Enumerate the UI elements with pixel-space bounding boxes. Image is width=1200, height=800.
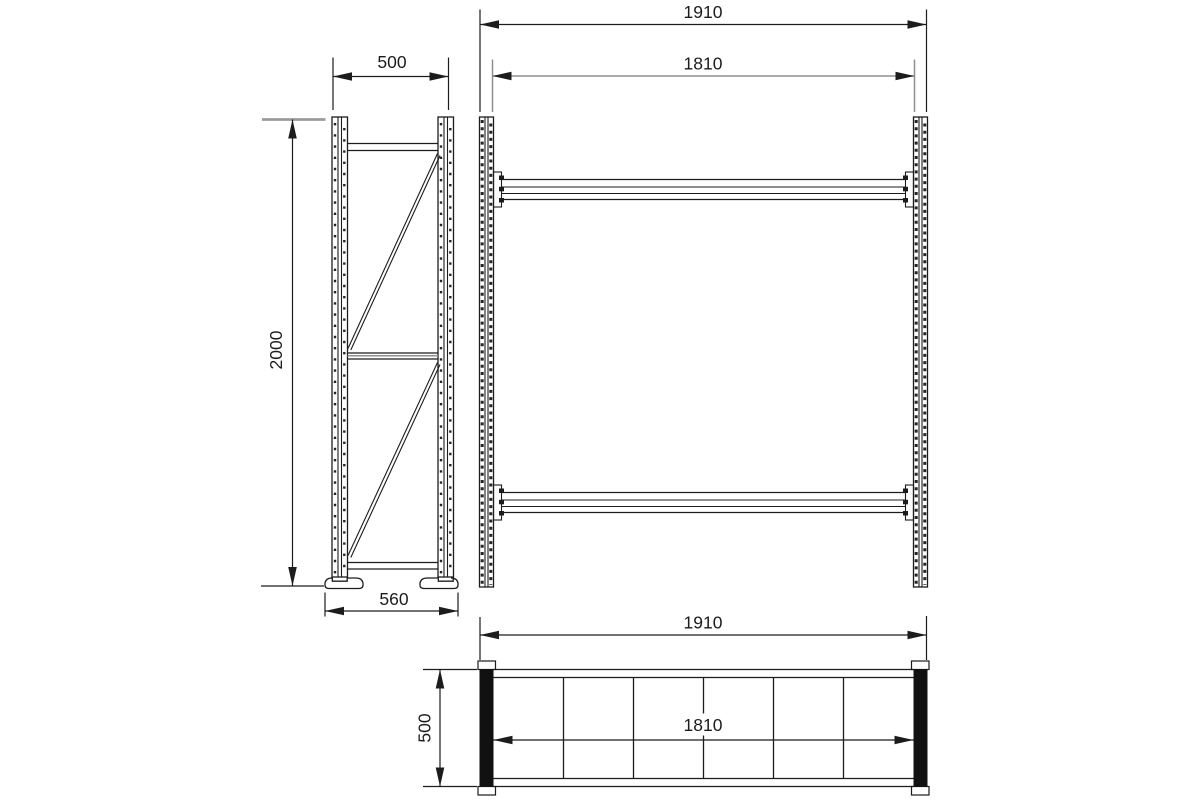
arrowhead <box>493 72 512 81</box>
arrowhead <box>436 670 445 689</box>
arrowhead <box>480 631 499 640</box>
connector-hook <box>499 198 504 203</box>
dimension-label: 1910 <box>684 613 723 633</box>
dim-side-frame-width: 500 <box>333 52 449 110</box>
plan-post-right <box>914 669 928 787</box>
arrowhead <box>494 736 513 745</box>
dimension-label: 560 <box>379 589 408 609</box>
arrowhead <box>439 607 458 616</box>
dimension-label: 2000 <box>266 330 286 369</box>
diagonal-brace-upper <box>351 156 440 351</box>
dim-side-base-width: 560 <box>325 589 458 617</box>
foot-pad <box>478 787 496 796</box>
diagonal-brace-lower <box>348 363 438 556</box>
foot-plate-right <box>420 578 458 589</box>
front-right-post <box>914 117 928 587</box>
dim-side-height: 2000 <box>261 120 326 587</box>
foot-pad <box>478 661 496 670</box>
plan-post-left <box>480 669 494 787</box>
arrowhead <box>895 736 914 745</box>
upper-beam <box>494 172 914 207</box>
dim-plan-depth: 500 <box>415 670 478 787</box>
arrowhead <box>325 607 344 616</box>
arrowhead <box>480 20 499 29</box>
foot-pad <box>912 787 930 796</box>
diagonal-brace-upper <box>348 154 438 349</box>
dimension-label: 500 <box>415 713 435 742</box>
arrowhead <box>896 72 915 81</box>
dim-front-beam-width: 1810 <box>493 54 915 113</box>
foot-plate-left <box>325 578 363 589</box>
diagonal-brace-lower <box>351 365 440 558</box>
horizontal-braces <box>348 144 439 570</box>
arrowhead <box>908 20 927 29</box>
arrowhead <box>436 768 445 787</box>
connector-hook <box>499 511 504 516</box>
lower-beam <box>494 485 914 520</box>
arrowhead <box>333 72 352 81</box>
connector-hook <box>903 511 908 516</box>
dimension-label: 1810 <box>684 54 723 74</box>
drawing-canvas: 500 2000 560 <box>0 0 1200 800</box>
dimension-label: 500 <box>377 52 406 72</box>
front-left-post <box>480 117 494 587</box>
side-left-post <box>332 117 348 577</box>
dim-plan-overall-width: 1910 <box>480 613 927 661</box>
foot-pad <box>912 661 930 670</box>
arrowhead <box>288 567 297 586</box>
foot-plates <box>325 578 458 589</box>
side-view: 500 2000 560 <box>261 52 458 617</box>
arrowhead <box>430 72 449 81</box>
dimension-label: 1910 <box>684 2 723 22</box>
dimension-label: 1810 <box>684 715 723 735</box>
connector-hook <box>903 198 908 203</box>
plan-view: 1910 <box>415 613 930 796</box>
arrowhead <box>908 631 927 640</box>
arrowhead <box>288 120 297 139</box>
front-view: 1910 1810 <box>480 2 928 587</box>
dim-plan-beam-width: 1810 <box>494 714 914 745</box>
rack-technical-drawing: 500 2000 560 <box>0 0 1200 800</box>
side-right-post <box>438 117 454 577</box>
